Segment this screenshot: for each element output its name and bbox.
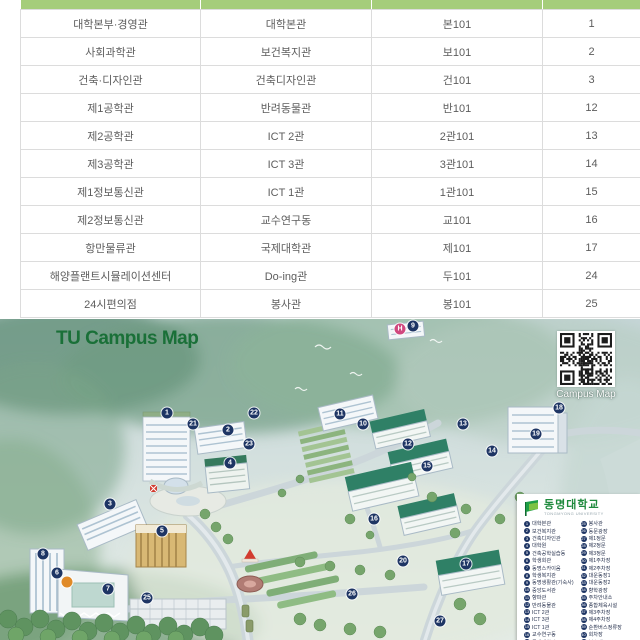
- legend-item: 16 교수연구동: [524, 631, 581, 638]
- building-number-marker: 23: [244, 439, 255, 450]
- table-header-strip: [21, 0, 640, 10]
- legend-item: 36 종합체육시설: [581, 601, 638, 608]
- legend-item: 26 동문광장: [581, 527, 638, 534]
- building-number-marker: 11: [335, 409, 346, 420]
- legend-item-label: 보건복지관: [532, 528, 556, 535]
- marker-number: 2: [226, 427, 230, 434]
- map-title: TU Campus Map: [56, 328, 198, 350]
- legend-item-number: 11: [524, 595, 530, 601]
- building-number-marker: 27: [435, 616, 446, 627]
- university-flag-icon: [524, 500, 541, 516]
- marker-number: 15: [423, 463, 431, 470]
- building-number-marker: 17: [461, 559, 472, 570]
- cell-map-number: 17: [543, 234, 640, 262]
- legend-item-number: 4: [524, 543, 530, 549]
- legend-item: 1 대학본관: [524, 520, 581, 527]
- building-number-marker: 5: [157, 526, 168, 537]
- legend-item: 39 순환버스정류장: [581, 624, 638, 631]
- legend-item-number: 3: [524, 536, 530, 542]
- legend-item-label: 제3주차장: [589, 609, 611, 616]
- cell-room-code: 교101: [372, 206, 543, 234]
- marker-number: 27: [436, 618, 444, 625]
- building-number-marker: H: [395, 324, 406, 335]
- building-number-marker: 7: [103, 584, 114, 595]
- marker-number: 22: [250, 410, 258, 417]
- marker-number: 17: [462, 561, 470, 568]
- cell-room-code: 1관101: [372, 178, 543, 206]
- legend-item: 4 대학원: [524, 542, 581, 549]
- building-number-marker: 13: [458, 419, 469, 430]
- building-number-marker: 22: [249, 408, 260, 419]
- cell-new-building-name: ICT 1관: [201, 178, 372, 206]
- qr-caption: Campus Map: [555, 389, 617, 400]
- legend-item-number: 8: [524, 573, 530, 579]
- legend-item: 38 제4주차장: [581, 616, 638, 623]
- legend-item: 2 보건복지관: [524, 527, 581, 534]
- cell-new-building-name: 대학본관: [201, 10, 372, 38]
- marker-number: 9: [411, 323, 415, 330]
- legend-item-number: 31: [581, 565, 587, 571]
- legend-item-label: 건축디자인관: [532, 535, 561, 542]
- legend-item-number: 40: [581, 632, 587, 638]
- legend-item: 12 반려동물관: [524, 601, 581, 608]
- roundabout-center: [244, 581, 256, 588]
- legend-item-label: 제3정문: [589, 550, 606, 557]
- cell-map-number: 2: [543, 38, 640, 66]
- legend-item-number: 36: [581, 602, 587, 608]
- cell-old-building-name: 해양플랜트시뮬레이션센터: [21, 262, 201, 290]
- legend-item-number: 30: [581, 558, 587, 564]
- header-cell: [543, 0, 640, 10]
- legend-item: 5 건축공학실습동: [524, 550, 581, 557]
- cell-new-building-name: 건축디자인관: [201, 66, 372, 94]
- cell-room-code: 봉101: [372, 290, 543, 318]
- legend-item: 35 주차안내소: [581, 594, 638, 601]
- legend-item-label: 향파관: [532, 594, 546, 601]
- legend-column-left: 1 대학본관 2 보건복지관 3 건축디자인관 4: [524, 520, 581, 640]
- marker-number: 13: [459, 421, 467, 428]
- cell-old-building-name: 대학본부·경영관: [21, 10, 201, 38]
- marker-number: 8: [41, 551, 45, 558]
- legend-item-label: 동문광장: [589, 528, 608, 535]
- cell-room-code: 두101: [372, 262, 543, 290]
- building-number-marker: 3: [105, 499, 116, 510]
- legend-item-number: 35: [581, 595, 587, 601]
- header-cell: [21, 0, 201, 10]
- legend-item: 29 제3정문: [581, 550, 638, 557]
- legend-item-number: 32: [581, 573, 587, 579]
- marker-number: 5: [160, 528, 164, 535]
- building-name-table: 대학본부·경영관 대학본관 본101 1 사회과학관 보건복지관 보101 2 …: [20, 0, 640, 318]
- cell-old-building-name: 24시편의점: [21, 290, 201, 318]
- legend-item-label: 종합체육시설: [589, 602, 618, 609]
- marker-number: 26: [348, 591, 356, 598]
- cell-old-building-name: 항만물류관: [21, 234, 201, 262]
- map-legend: 동명대학교 TONGMYONG UNIVERSITY 1 대학본관 2 보건복지…: [517, 494, 640, 640]
- legend-item-label: 제1주차장: [589, 557, 611, 564]
- legend-item-number: 13: [524, 609, 530, 615]
- cell-old-building-name: 제2정보통신관: [21, 206, 201, 234]
- legend-item-label: 대학원: [532, 542, 546, 549]
- legend-item-number: 29: [581, 550, 587, 556]
- legend-item-number: 33: [581, 580, 587, 586]
- legend-item: 3 건축디자인관: [524, 535, 581, 542]
- table-row: 제1공학관 반려동물관 반101 12: [21, 94, 640, 122]
- table-row: 사회과학관 보건복지관 보101 2: [21, 38, 640, 66]
- table-row: 건축·디자인관 건축디자인관 건101 3: [21, 66, 640, 94]
- table-row: 24시편의점 봉사관 봉101 25: [21, 290, 640, 318]
- legend-item-label: 대운동장2: [589, 579, 611, 586]
- legend-item-number: 39: [581, 624, 587, 630]
- legend-item-label: ICT 1관: [532, 624, 549, 631]
- building-number-marker: 6: [52, 568, 63, 579]
- cell-map-number: 25: [543, 290, 640, 318]
- legend-item-label: 회차장: [589, 631, 603, 638]
- building-number-marker: 20: [398, 556, 409, 567]
- legend-item: 9 동명생활관(기숙사): [524, 579, 581, 586]
- building-number-marker: 26: [347, 589, 358, 600]
- marker-number: 1: [165, 410, 169, 417]
- university-name: 동명대학교: [544, 499, 604, 511]
- legend-item-label: 대운동장1: [589, 572, 611, 579]
- legend-item: 34 향학광장: [581, 587, 638, 594]
- legend-item-number: 10: [524, 587, 530, 593]
- legend-item: 14 ICT 3관: [524, 616, 581, 623]
- qr-code-pattern: [559, 333, 613, 385]
- building-number-marker: 4: [225, 458, 236, 469]
- marker-number: 21: [189, 421, 197, 428]
- legend-item-label: 제4주차장: [589, 616, 611, 623]
- legend-item-number: 12: [524, 602, 530, 608]
- cell-new-building-name: 반려동물관: [201, 94, 372, 122]
- cell-map-number: 24: [543, 262, 640, 290]
- legend-item-number: 14: [524, 617, 530, 623]
- legend-item: 30 제1주차장: [581, 557, 638, 564]
- marker-number: 23: [245, 441, 253, 448]
- legend-item-number: 7: [524, 565, 530, 571]
- building-number-marker: 10: [358, 419, 369, 430]
- cell-room-code: 반101: [372, 94, 543, 122]
- legend-item-number: 6: [524, 558, 530, 564]
- building-number-marker: 12: [403, 439, 414, 450]
- building-number-marker: 9: [408, 321, 419, 332]
- cell-map-number: 13: [543, 122, 640, 150]
- cell-new-building-name: 봉사관: [201, 290, 372, 318]
- marker-number: 10: [359, 421, 367, 428]
- header-cell: [372, 0, 543, 10]
- legend-item: 15 ICT 1관: [524, 624, 581, 631]
- cell-new-building-name: Do-ing관: [201, 262, 372, 290]
- cell-map-number: 14: [543, 150, 640, 178]
- cell-room-code: 건101: [372, 66, 543, 94]
- building-number-marker: 25: [142, 593, 153, 604]
- marker-number: 11: [336, 411, 343, 418]
- cell-room-code: 본101: [372, 10, 543, 38]
- legend-item-number: 38: [581, 617, 587, 623]
- table-row: 대학본부·경영관 대학본관 본101 1: [21, 10, 640, 38]
- legend-item: 32 대운동장1: [581, 572, 638, 579]
- legend-item: 25 봉사관: [581, 520, 638, 527]
- legend-item-label: 제2주차장: [589, 565, 611, 572]
- qr-code: [557, 331, 615, 387]
- legend-item: 10 중앙도서관: [524, 587, 581, 594]
- legend-item-label: 주차안내소: [589, 594, 613, 601]
- cell-new-building-name: ICT 2관: [201, 122, 372, 150]
- cell-map-number: 3: [543, 66, 640, 94]
- legend-item-number: 37: [581, 609, 587, 615]
- cell-room-code: 보101: [372, 38, 543, 66]
- legend-item: 31 제2주차장: [581, 564, 638, 571]
- table-body: 대학본부·경영관 대학본관 본101 1 사회과학관 보건복지관 보101 2 …: [21, 10, 640, 318]
- building-number-marker: 14: [487, 446, 498, 457]
- building-number-marker: 1: [162, 408, 173, 419]
- legend-item-label: 중앙도서관: [532, 587, 556, 594]
- cell-map-number: 16: [543, 206, 640, 234]
- legend-item: 28 제2정문: [581, 542, 638, 549]
- cell-new-building-name: 보건복지관: [201, 38, 372, 66]
- legend-item-label: 학생복지관: [532, 572, 556, 579]
- marker-number: 7: [106, 586, 110, 593]
- legend-item: 6 학생회관: [524, 557, 581, 564]
- marker-number: 20: [399, 558, 407, 565]
- legend-item-label: 순환버스정류장: [589, 624, 622, 631]
- legend-item-label: 향학광장: [589, 587, 608, 594]
- cell-map-number: 12: [543, 94, 640, 122]
- legend-item-number: 25: [581, 521, 587, 527]
- marker-number: H: [397, 326, 402, 333]
- marker-number: 6: [55, 570, 59, 577]
- legend-item-label: ICT 2관: [532, 609, 549, 616]
- building-number-marker: 16: [369, 514, 380, 525]
- legend-item-number: 2: [524, 528, 530, 534]
- table-row: 제2공학관 ICT 2관 2관101 13: [21, 122, 640, 150]
- marker-number: 12: [404, 441, 412, 448]
- legend-item-number: 34: [581, 587, 587, 593]
- legend-item-number: 28: [581, 543, 587, 549]
- cell-map-number: 15: [543, 178, 640, 206]
- legend-item-number: 26: [581, 528, 587, 534]
- marker-number: 18: [555, 405, 563, 412]
- marker-number: 16: [370, 516, 378, 523]
- legend-column-right: 25 봉사관 26 동문광장 27 제1정문 28: [581, 520, 638, 640]
- legend-item: 13 ICT 2관: [524, 609, 581, 616]
- legend-item: 8 학생복지관: [524, 572, 581, 579]
- marker-number: 25: [143, 595, 151, 602]
- cell-old-building-name: 제3공학관: [21, 150, 201, 178]
- university-name-en: TONGMYONG UNIVERSITY: [544, 511, 604, 516]
- building-number-marker: 18: [554, 403, 565, 414]
- legend-item-number: 27: [581, 536, 587, 542]
- legend-item-number: 1: [524, 521, 530, 527]
- cell-old-building-name: 사회과학관: [21, 38, 201, 66]
- legend-item: 11 향파관: [524, 594, 581, 601]
- cell-old-building-name: 제1공학관: [21, 94, 201, 122]
- legend-item: 37 제3주차장: [581, 609, 638, 616]
- legend-item: 27 제1정문: [581, 535, 638, 542]
- table-row: 제1정보통신관 ICT 1관 1관101 15: [21, 178, 640, 206]
- building-number-marker: 19: [531, 429, 542, 440]
- legend-item: 40 회차장: [581, 631, 638, 638]
- legend-item-label: 대학본관: [532, 520, 551, 527]
- legend-item-label: 건축공학실습동: [532, 550, 565, 557]
- cell-new-building-name: 교수연구동: [201, 206, 372, 234]
- legend-item-number: 5: [524, 550, 530, 556]
- building-number-marker: 2: [223, 425, 234, 436]
- qr-code-block: Campus Map: [555, 331, 617, 400]
- legend-item-label: 동명스카이움: [532, 565, 561, 572]
- cell-old-building-name: 건축·디자인관: [21, 66, 201, 94]
- building-number-marker: 15: [422, 461, 433, 472]
- legend-item-label: 학생회관: [532, 557, 551, 564]
- cell-room-code: 3관101: [372, 150, 543, 178]
- cell-room-code: 2관101: [372, 122, 543, 150]
- university-logo: 동명대학교 TONGMYONG UNIVERSITY: [524, 499, 637, 516]
- legend-item: 33 대운동장2: [581, 579, 638, 586]
- table-row: 항만물류관 국제대학관 제101 17: [21, 234, 640, 262]
- marker-number: 3: [108, 501, 112, 508]
- cell-new-building-name: ICT 3관: [201, 150, 372, 178]
- marker-number: 4: [228, 460, 232, 467]
- legend-item: 7 동명스카이움: [524, 564, 581, 571]
- table-row: 해양플랜트시뮬레이션센터 Do-ing관 두101 24: [21, 262, 640, 290]
- table-row: 제2정보통신관 교수연구동 교101 16: [21, 206, 640, 234]
- legend-item-number: 16: [524, 632, 530, 638]
- legend-item-label: 반려동물관: [532, 602, 556, 609]
- marker-number: 19: [532, 431, 540, 438]
- legend-item-label: 제1정문: [589, 535, 606, 542]
- cell-room-code: 제101: [372, 234, 543, 262]
- building-number-marker: 21: [188, 419, 199, 430]
- campus-map: TU Campus Map: [0, 319, 640, 640]
- building-number-marker: [62, 577, 73, 588]
- header-cell: [201, 0, 372, 10]
- cell-map-number: 1: [543, 10, 640, 38]
- building-number-marker: 8: [38, 549, 49, 560]
- legend-item-number: 9: [524, 580, 530, 586]
- plaza-fountain: [176, 496, 200, 506]
- marker-number: 14: [488, 448, 496, 455]
- legend-item-label: ICT 3관: [532, 616, 549, 623]
- cell-old-building-name: 제1정보통신관: [21, 178, 201, 206]
- table-row: 제3공학관 ICT 3관 3관101 14: [21, 150, 640, 178]
- legend-item-label: 봉사관: [589, 520, 603, 527]
- cell-new-building-name: 국제대학관: [201, 234, 372, 262]
- legend-item-label: 제2정문: [589, 542, 606, 549]
- legend-item-number: 15: [524, 624, 530, 630]
- legend-item-label: 동명생활관(기숙사): [532, 579, 574, 586]
- cell-old-building-name: 제2공학관: [21, 122, 201, 150]
- legend-item-label: 교수연구동: [532, 631, 556, 638]
